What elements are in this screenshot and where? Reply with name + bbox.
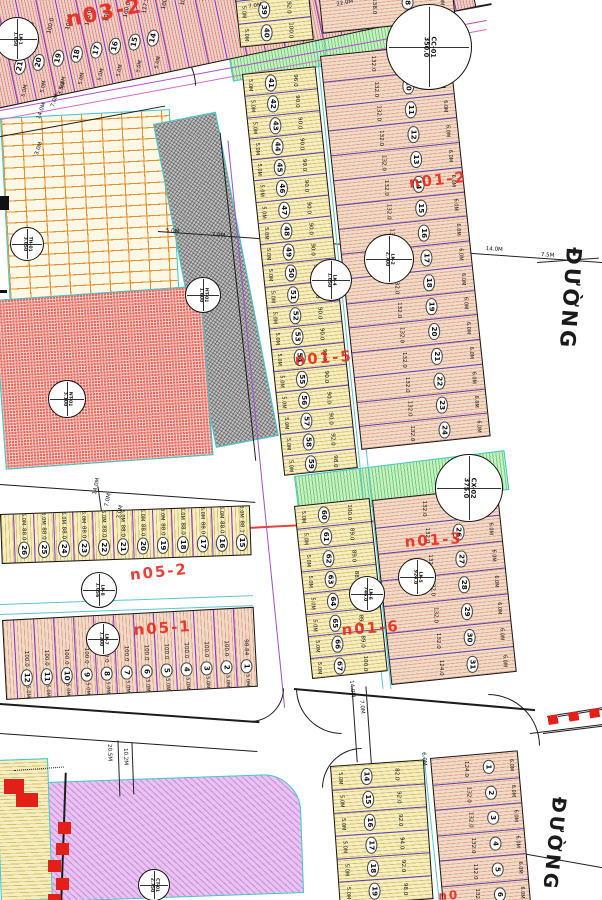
- lot-width-label: 5.0M: [64, 683, 70, 695]
- lot-number: 46: [277, 180, 289, 197]
- lot-number: 10: [61, 667, 73, 684]
- lot-area: 132.0: [383, 179, 389, 195]
- lot-width-label: 5.0M: [340, 818, 346, 830]
- lot-area: 132.0: [386, 204, 392, 220]
- lot-area: 88.0: [120, 525, 126, 537]
- lot-area: 100.0: [46, 18, 55, 35]
- lot-width-label: 5.0M: [84, 682, 90, 694]
- lot-number: 20: [429, 323, 441, 340]
- lot-area: 90.0: [319, 328, 325, 340]
- land-use-stamp: LK-71.200: [86, 622, 120, 656]
- lot-number: 25: [39, 540, 50, 557]
- lot-width-label: 5.0M: [339, 795, 345, 807]
- lot-area: 100.0: [180, 0, 189, 6]
- land-use-stamp: LK-22.700: [364, 234, 414, 284]
- lot-strip-lots: 124.016.0M132.026.0M132.036.0M132.046.0M…: [431, 751, 530, 900]
- lot-width-label: 5.0M: [164, 678, 170, 690]
- lot-width-label: 6.0M: [462, 297, 468, 309]
- lot-number: 15: [416, 200, 428, 217]
- lot-width-label: 5.0M: [263, 227, 269, 239]
- lot-area: 138.0: [371, 0, 377, 14]
- stamp-text: HT-011.600: [197, 288, 208, 303]
- lot-area: 132.0: [396, 302, 402, 318]
- lot-width-label: 6.0M: [473, 396, 479, 408]
- dimension-label: 14.0M: [348, 680, 356, 698]
- lot-width-label: 5.0M: [304, 554, 310, 566]
- lot-width-label: 5.0M: [238, 505, 244, 517]
- lot-number: 52: [290, 307, 302, 324]
- zoning-map-canvas: 100.0215.0M100.0205.0M100.0195.0M100.018…: [0, 0, 602, 900]
- lot-number: 9: [81, 667, 93, 681]
- road-name-label: ĐƯỜNG: [555, 246, 586, 351]
- lot-number: 45: [275, 159, 287, 176]
- dimension-label: 14.0M: [486, 246, 503, 253]
- lot-width-label: 6.0M: [447, 150, 453, 162]
- lot-area: 100.0: [182, 642, 188, 658]
- lot-number: 11: [406, 102, 418, 119]
- lot-width-label: 6.0M: [496, 602, 502, 614]
- lot-area: 132.0: [378, 130, 384, 146]
- lot-width-label: 5.0M: [243, 29, 249, 41]
- lot-number: 42: [268, 96, 280, 113]
- lot-number: 15: [127, 33, 142, 52]
- lot-width-label: 6.0M: [444, 125, 450, 137]
- lot-width-label: 5.0M: [21, 513, 27, 525]
- lot-number: 7: [121, 665, 133, 679]
- lot-number: 3: [200, 661, 212, 675]
- lot-area: 100.0: [222, 640, 228, 656]
- lot-width-label: 6.0M: [493, 576, 499, 588]
- lot-number: 22: [98, 538, 110, 555]
- stamp-text: CX-02375.0: [461, 477, 477, 499]
- lot-cell: 88.0195.0M: [152, 509, 173, 558]
- lot-width-label: 6.0M: [460, 273, 466, 285]
- lot-area: 90.0: [317, 307, 323, 319]
- lot-width-label: 6.0M: [515, 836, 521, 848]
- lot-area: 90.0: [301, 159, 307, 171]
- lot-width-label: 6.0M: [465, 322, 471, 334]
- stamp-text: LK-6746.0: [361, 587, 372, 602]
- lot-width-label: 6.0M: [455, 224, 461, 236]
- lot-width-label: 5.0M: [259, 185, 265, 197]
- lot-area: 89.0: [348, 528, 354, 540]
- lot-width-label: 5.0M: [311, 619, 317, 631]
- lot-cell: 88.0255.0M: [33, 513, 54, 562]
- lot-area: 132.0: [373, 81, 379, 97]
- lot-strip-bot-right: 124.016.0M132.026.0M132.036.0M132.046.0M…: [430, 750, 532, 900]
- lot-number: 23: [78, 539, 90, 556]
- land-use-stamp: CT-012.750: [138, 869, 170, 900]
- lot-number: 23: [437, 397, 449, 414]
- lot-area: 132.0: [409, 426, 415, 442]
- stamp-text: NT-013.100: [61, 392, 72, 407]
- map-line: [0, 290, 7, 293]
- lot-number: 16: [364, 814, 376, 831]
- lot-number: 1: [240, 659, 252, 673]
- lot-width-label: 5.0M: [277, 354, 283, 366]
- lot-area: 132.0: [432, 607, 438, 623]
- lot-area: 132.0: [466, 787, 472, 803]
- lot-width-label: 5.0M: [204, 676, 210, 688]
- lot-number: 49: [283, 244, 295, 261]
- lot-cell: 88.0225.0M: [92, 511, 113, 560]
- lot-number: 6: [494, 888, 506, 900]
- lot-area: 89.0: [359, 636, 365, 648]
- lot-number: 47: [279, 201, 291, 218]
- lot-width-label: 5.0M: [224, 675, 230, 687]
- lot-width-label: 5.0M: [288, 460, 294, 472]
- lot-number: 17: [88, 41, 103, 60]
- lot-number: 24: [440, 422, 452, 439]
- lot-number: 65: [330, 615, 342, 632]
- map-line: [0, 733, 257, 752]
- lot-strip-right-bot: 132.0256.0M132.0266.0M132.0276.0M132.028…: [372, 487, 517, 685]
- red-step-marker: [4, 779, 24, 794]
- lot-area: 94.0: [399, 837, 405, 849]
- map-line: [366, 686, 372, 764]
- lot-area: 90.0: [328, 413, 334, 425]
- lot-width-label: 5.0M: [307, 576, 313, 588]
- lot-cell: 88.0205.0M: [132, 510, 153, 559]
- lot-width-label: 5.0M: [24, 685, 30, 697]
- lot-area: 88.0: [61, 527, 67, 539]
- lot-area: 92.0: [330, 434, 336, 446]
- lot-strip-lots: 100.0125.0M100.0115.0M100.0105.0M100.095…: [3, 608, 257, 699]
- lot-number: 22: [434, 372, 446, 389]
- lot-number: 15: [237, 534, 249, 551]
- stamp-text: CT-012.750: [148, 878, 159, 893]
- map-line: [0, 484, 255, 503]
- lot-width-label: 5.0M: [116, 64, 124, 77]
- lot-width-label: 5.0M: [270, 290, 276, 302]
- lot-number: 18: [367, 860, 379, 877]
- lot-area: 98.0: [402, 883, 408, 895]
- lot-width-label: 6.0M: [513, 810, 519, 822]
- lot-number: 67: [334, 658, 346, 675]
- stamp-text: LK-22.700: [383, 252, 394, 267]
- dimension-label: 14.0M: [92, 477, 101, 495]
- lot-area: 132.0: [435, 633, 441, 649]
- lot-area: 90.0: [323, 370, 329, 382]
- lot-area: 88.0: [199, 522, 205, 534]
- lot-number: 44: [272, 138, 284, 155]
- lot-strip-lots: 82.0145.0M92.0155.0M92.0165.0M94.0175.0M…: [331, 761, 432, 900]
- lot-area: 98.0: [332, 455, 338, 467]
- lot-strip-lots: 88.0265.0M88.0255.0M88.0245.0M88.0235.0M…: [1, 506, 251, 563]
- lot-number: 1: [483, 760, 495, 774]
- lot-width-label: 5.0M: [248, 79, 254, 91]
- lot-number: 4: [490, 837, 502, 851]
- lot-number: 50: [286, 265, 298, 282]
- lot-number: 61: [321, 528, 333, 545]
- lot-number: 5: [160, 663, 172, 677]
- lot-number: 12: [408, 126, 420, 143]
- lot-width-label: 5.0M: [302, 533, 308, 545]
- lot-area: 132.0: [472, 863, 478, 879]
- lot-width-label: 5.0M: [300, 511, 306, 523]
- lot-number: 62: [323, 550, 335, 567]
- map-line: [0, 196, 9, 210]
- lot-area: 132.0: [376, 106, 382, 122]
- lot-cell: 88.0175.0M: [191, 508, 212, 557]
- lot-width-label: 6.0M: [519, 887, 525, 899]
- lot-width-label: 5.0M: [135, 60, 143, 73]
- map-line: [0, 703, 259, 723]
- lot-width-label: 5.0M: [261, 206, 267, 218]
- lot-number: 20: [31, 53, 46, 72]
- lot-area: 132.0: [399, 327, 405, 343]
- zone-label: n05-2: [129, 560, 189, 584]
- dimension-label: 7.0M: [104, 493, 113, 507]
- lot-area: 132.0: [470, 838, 476, 854]
- red-boundary-marker-line: [547, 686, 602, 725]
- lot-area: 132.0: [370, 56, 376, 72]
- stamp-text: LK-81.056: [93, 583, 104, 598]
- lot-area: 89.0: [350, 550, 356, 562]
- red-step-marker: [48, 860, 61, 872]
- lot-cell: 88.0245.0M: [53, 512, 74, 561]
- map-line: [0, 595, 253, 605]
- lot-number: 20: [138, 537, 150, 554]
- road-name-label: ĐƯỜNG: [538, 796, 570, 893]
- red-step-marker: [56, 843, 69, 855]
- red-step-marker: [58, 822, 71, 834]
- lot-width-label: 5.0M: [78, 72, 86, 85]
- lot-width-label: 5.0M: [199, 507, 205, 519]
- lot-number: 55: [297, 370, 309, 387]
- lot-area: 132.0: [421, 501, 427, 517]
- land-use-stamp: LK-6746.0: [349, 576, 385, 612]
- lot-cell: 88.0165.0M: [211, 507, 232, 556]
- lot-cell: 98.8415.0M: [233, 608, 257, 687]
- lot-number: 27: [456, 550, 468, 567]
- lot-area: 100.0: [22, 651, 28, 667]
- lot-number: 59: [306, 455, 318, 472]
- lot-width-label: 5.0M: [268, 269, 274, 281]
- lot-strip-n05-2: 88.0265.0M88.0255.0M88.0245.0M88.0235.0M…: [0, 505, 252, 564]
- lot-number: 19: [50, 49, 65, 68]
- lot-width-label: 5.0M: [342, 841, 348, 853]
- land-use-stamp: LK-5924.0: [398, 558, 436, 596]
- lot-area: 90.0: [310, 243, 316, 255]
- lot-number: 17: [197, 535, 209, 552]
- lot-width-label: 5.0M: [244, 674, 250, 686]
- lot-area: 100.0: [162, 643, 168, 659]
- land-use-stamp: HT-011.600: [185, 277, 221, 313]
- lot-width-label: 6.0M: [502, 655, 508, 667]
- lot-number: 17: [421, 249, 433, 266]
- lot-area: 88.0: [219, 521, 225, 533]
- road-corner-curve: [488, 694, 540, 746]
- lot-area: 132.0: [468, 812, 474, 828]
- road-corner-curve: [296, 688, 342, 734]
- dimension-label: 7.5M: [541, 252, 555, 259]
- lot-width-label: 6.0M: [510, 785, 516, 797]
- lot-number: 58: [303, 434, 315, 451]
- lot-number: 18: [69, 45, 84, 64]
- lot-number: 14: [146, 29, 161, 48]
- lot-width-label: 5.0M: [309, 598, 315, 610]
- lot-number: 14: [361, 767, 373, 784]
- lot-number: 15: [363, 791, 375, 808]
- lot-width-label: 6.0M: [457, 248, 463, 260]
- lot-area: 132.0: [404, 376, 410, 392]
- lot-number: 16: [107, 37, 122, 56]
- lot-number: 17: [366, 837, 378, 854]
- lot-area: 132.0: [407, 401, 413, 417]
- lot-area: 88.0: [140, 524, 146, 536]
- lot-width-label: 5.0M: [40, 80, 48, 93]
- lot-strip-bot-left: 82.0145.0M92.0155.0M92.0165.0M94.0175.0M…: [330, 759, 434, 900]
- lot-number: 19: [427, 299, 439, 316]
- land-use-stamp: TH-013.050: [10, 227, 44, 261]
- lot-area: 90.0: [299, 138, 305, 150]
- lot-area: 90.0: [294, 96, 300, 108]
- lot-number: 2: [220, 660, 232, 674]
- lot-area: 82.0: [394, 768, 400, 780]
- lot-number: 18: [424, 274, 436, 291]
- lot-width-label: 5.0M: [274, 333, 280, 345]
- stamp-text: TH-013.050: [21, 236, 32, 252]
- lot-area: 90.0: [303, 180, 309, 192]
- lot-width-label: 5.0M: [179, 507, 185, 519]
- lot-number: 21: [432, 348, 444, 365]
- lot-number: 30: [464, 629, 476, 646]
- lot-number: 19: [157, 536, 169, 553]
- lot-area: 100.0: [345, 504, 351, 520]
- lot-area: 96.0: [292, 74, 298, 86]
- lot-number: 16: [419, 225, 431, 242]
- lot-width-label: 5.0M: [285, 438, 291, 450]
- lot-area: 100.0: [199, 0, 208, 2]
- stamp-text: LK-11.050: [11, 32, 22, 47]
- lot-cell: 88.0265.0M: [13, 514, 34, 563]
- stamp-text: LK-71.200: [97, 632, 108, 647]
- lot-number: 31: [467, 656, 479, 673]
- lot-area: 124.0: [437, 660, 443, 676]
- lot-width-label: 5.0M: [254, 143, 260, 155]
- lot-area: 100.0: [361, 656, 367, 672]
- lot-area: 90.0: [305, 201, 311, 213]
- land-use-stamp: CC-01350.0: [386, 4, 472, 90]
- lot-number: 16: [217, 534, 229, 551]
- lot-number: 56: [299, 392, 311, 409]
- lot-area: 88.0: [41, 527, 47, 539]
- lot-width-label: 6.0M: [470, 371, 476, 383]
- lot-number: 28: [458, 577, 470, 594]
- lot-width-label: 5.0M: [184, 677, 190, 689]
- lot-number: 48: [281, 223, 293, 240]
- lot-number: 60: [318, 506, 330, 523]
- dimension-label: 7.0M: [212, 232, 226, 239]
- lot-number: 53: [292, 328, 304, 345]
- lot-width-label: 6.0M: [491, 549, 497, 561]
- lot-cell: 88.1155.0M: [231, 506, 252, 555]
- lot-width-label: 6.0M: [442, 100, 448, 112]
- lot-strip-left-top: 92.0395.0M100.0405.0M: [234, 0, 314, 48]
- lot-width-label: 5.0M: [40, 512, 46, 524]
- lot-width-label: 6.0M: [475, 420, 481, 432]
- lot-area: 88.0: [100, 525, 106, 537]
- lot-number: 26: [19, 541, 31, 558]
- lot-width-label: 5.0M: [154, 56, 162, 69]
- lot-width-label: 5.0M: [159, 508, 165, 520]
- lot-width-label: 5.0M: [283, 417, 289, 429]
- lot-width-label: 5.0M: [80, 511, 86, 523]
- lot-number: 24: [58, 540, 70, 557]
- lot-strip-n05-1: 100.0125.0M100.0115.0M100.0105.0M100.095…: [2, 607, 258, 700]
- lot-number: 29: [461, 603, 473, 620]
- land-use-stamp: LK-41.050: [310, 259, 352, 301]
- lot-number: 6: [141, 664, 153, 678]
- lot-area: 98.84: [242, 639, 248, 655]
- stamp-text: LK-5924.0: [411, 570, 422, 585]
- red-step-marker: [16, 793, 38, 807]
- lot-width-label: 5.0M: [20, 84, 28, 97]
- lot-area: 92.0: [396, 791, 402, 803]
- red-step-marker: [56, 878, 69, 890]
- lot-cell: 88.0235.0M: [72, 512, 93, 561]
- lot-number: 63: [325, 571, 337, 588]
- lot-area: 100.0: [142, 644, 148, 660]
- lot-area: 88.0: [80, 526, 86, 538]
- lot-number: 41: [266, 74, 278, 91]
- lot-width-label: 5.0M: [144, 679, 150, 691]
- lot-width-label: 5.0M: [345, 887, 351, 899]
- lot-area: 88.0: [160, 523, 166, 535]
- lot-width-label: 5.0M: [124, 680, 130, 692]
- lot-area: 132.0: [401, 352, 407, 368]
- lot-area: 92.0: [400, 860, 406, 872]
- lot-area: 132.0: [475, 889, 481, 900]
- lot-area: 124.0: [463, 761, 469, 777]
- lot-width-label: 6.0M: [488, 523, 494, 535]
- lot-number: 18: [177, 536, 189, 553]
- stamp-text: LK-41.050: [325, 273, 336, 288]
- lot-number: 64: [328, 593, 340, 610]
- lot-width-label: 5.0M: [257, 164, 263, 176]
- dimension-label: 20.5M: [106, 744, 113, 761]
- lot-strip-lots: 92.0395.0M100.0405.0M: [235, 0, 313, 47]
- lot-width-label: 5.0M: [265, 248, 271, 260]
- purple-block: [46, 773, 304, 900]
- lot-number: 57: [301, 413, 313, 430]
- lot-area: 100.0: [42, 650, 48, 666]
- lot-width-label: 5.0M: [241, 6, 247, 18]
- lot-width-label: 5.0M: [104, 681, 110, 693]
- dimension-label: 6.0M: [420, 752, 427, 766]
- lot-area: 90.0: [297, 117, 303, 129]
- lot-number: 43: [270, 117, 282, 134]
- lot-number: 12: [21, 669, 33, 686]
- lot-area: 100.0: [288, 22, 294, 38]
- lot-width-label: 5.0M: [337, 772, 343, 784]
- lot-width-label: 5.0M: [100, 510, 106, 522]
- land-use-stamp: NT-013.100: [48, 380, 86, 418]
- lot-area: 100.0: [202, 641, 208, 657]
- lot-number: 11: [41, 668, 53, 685]
- lot-area: 88.0: [179, 523, 185, 535]
- lot-area: 100.0: [122, 646, 128, 662]
- land-use-stamp: CX-02375.0: [435, 454, 503, 522]
- lot-area: 100.0: [82, 648, 88, 664]
- lot-number: 13: [411, 151, 423, 168]
- stamp-text: CC-01350.0: [421, 36, 437, 58]
- lot-width-label: 5.0M: [272, 312, 278, 324]
- lot-width-label: 5.0M: [316, 662, 322, 674]
- lot-width-label: 5.0M: [139, 509, 145, 521]
- lot-number: 40: [261, 24, 273, 41]
